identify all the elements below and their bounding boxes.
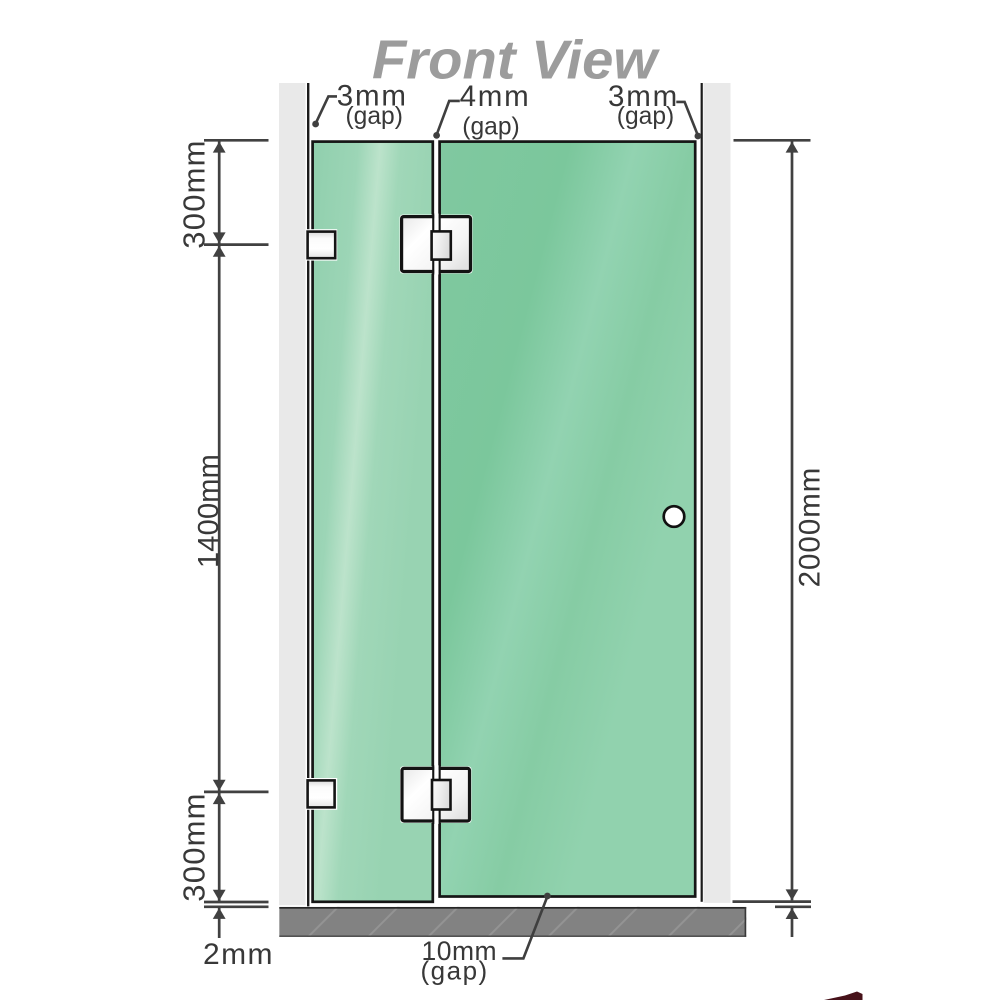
svg-text:300mm: 300mm	[176, 792, 211, 901]
svg-text:(gap): (gap)	[345, 103, 402, 130]
svg-text:2mm: 2mm	[203, 938, 274, 971]
svg-text:300mm: 300mm	[176, 139, 211, 248]
svg-text:(gap): (gap)	[421, 956, 489, 986]
svg-text:1400mm: 1400mm	[193, 454, 225, 568]
svg-text:2000mm: 2000mm	[794, 467, 827, 588]
svg-text:(gap): (gap)	[462, 113, 519, 140]
svg-text:4mm: 4mm	[460, 80, 531, 113]
svg-text:(gap): (gap)	[617, 103, 674, 130]
